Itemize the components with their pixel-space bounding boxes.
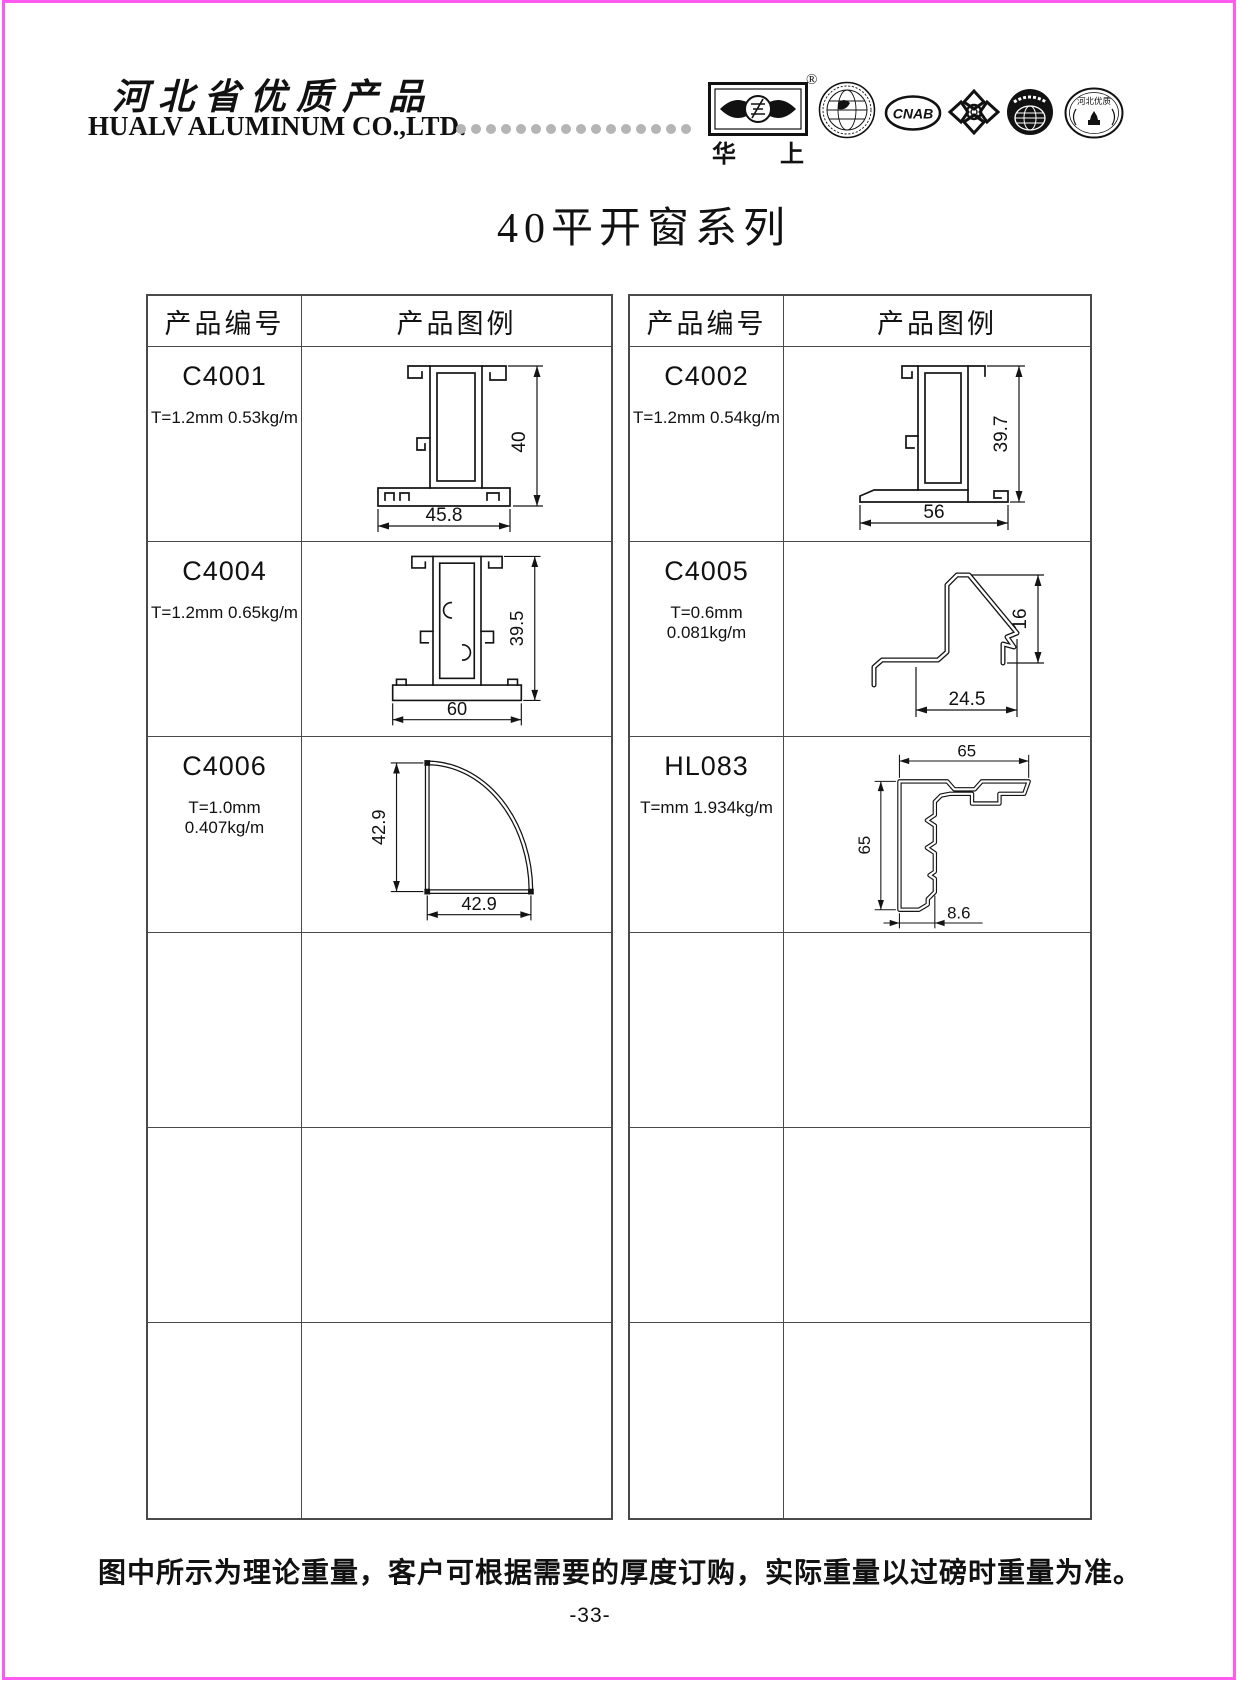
cnab-logo: CNAB [884, 94, 942, 137]
empty-cell [784, 933, 1090, 1128]
profile-drawing-c4004: 39.5 60 [337, 543, 577, 735]
column-header-product-code: 产品编号 [630, 296, 784, 347]
dim-width-label: 42.9 [461, 893, 497, 914]
empty-cell [630, 1323, 784, 1518]
world-map-icon [1006, 88, 1054, 136]
world-map-logo [1006, 88, 1054, 141]
huashang-eye-logo [708, 82, 808, 141]
dim-width-label: 24.5 [949, 689, 986, 710]
empty-cell [148, 1128, 302, 1323]
drawing-cell-c4005: 16 24.5 [784, 542, 1090, 737]
dim-offset-label: 8.6 [947, 904, 970, 923]
product-spec: T=mm 1.934kg/m [630, 798, 783, 818]
empty-cell [148, 933, 302, 1128]
hebei-oval-icon: 河北优质 [1064, 87, 1124, 139]
company-name: HUALV ALUMINUM CO.,LTD. [88, 111, 466, 142]
product-code: C4004 [148, 556, 301, 587]
product-spec: T=1.2mm 0.54kg/m [630, 408, 783, 428]
drawing-cell-c4002: 39.7 56 [784, 347, 1090, 542]
product-cell-c4006: C4006 T=1.0mm 0.407kg/m [148, 737, 302, 932]
product-cell-c4004: C4004 T=1.2mm 0.65kg/m [148, 542, 302, 737]
dim-height-label: 39.7 [991, 416, 1012, 453]
decorative-dots [456, 124, 691, 134]
product-spec: T=1.2mm 0.53kg/m [148, 408, 301, 428]
catalog-page: 河北省优质产品 HUALV ALUMINUM CO.,LTD. ® 华 上 [0, 0, 1240, 1683]
brand-characters: 华 上 [712, 134, 804, 169]
drawing-cell-c4001: 40 45.8 [302, 347, 611, 542]
brand-char-shang: 上 [780, 134, 804, 169]
dim-height-label: 16 [1010, 608, 1031, 629]
empty-cell [148, 1323, 302, 1518]
product-cell-c4005: C4005 T=0.6mm 0.081kg/m [630, 542, 784, 737]
dim-height-label: 39.5 [506, 611, 527, 647]
empty-cell [630, 933, 784, 1128]
product-cell-c4002: C4002 T=1.2mm 0.54kg/m [630, 347, 784, 542]
dim-left-label: 65 [855, 836, 874, 855]
dim-height-label: 40 [509, 432, 530, 453]
quality-knot-logo [948, 89, 1000, 140]
column-header-product-drawing: 产品图例 [784, 296, 1090, 347]
profile-drawing-c4002: 39.7 56 [812, 350, 1062, 538]
profile-drawing-c4006: 42.9 42.9 [337, 738, 577, 930]
empty-cell [630, 1128, 784, 1323]
product-code: C4006 [148, 751, 301, 782]
dim-width-label: 60 [446, 698, 466, 719]
empty-cell [302, 1128, 611, 1323]
huashang-eye-icon [708, 82, 808, 136]
hebei-quality-oval-logo: 河北优质 [1064, 87, 1124, 144]
column-header-product-code: 产品编号 [148, 296, 302, 347]
product-cell-hl083: HL083 T=mm 1.934kg/m [630, 737, 784, 932]
knot-icon [948, 89, 1000, 135]
globe-icon [818, 81, 876, 139]
drawing-cell-c4004: 39.5 60 [302, 542, 611, 737]
page-number: -33- [0, 1604, 1180, 1628]
globe-certification-logo [818, 81, 876, 144]
product-code: C4005 [630, 556, 783, 587]
product-code: C4001 [148, 361, 301, 392]
registered-mark: ® [806, 72, 817, 89]
empty-cell [302, 1323, 611, 1518]
footer-note: 图中所示为理论重量，客户可根据需要的厚度订购，实际重量以过磅时重量为准。 [30, 1551, 1210, 1591]
product-spec: T=0.6mm 0.081kg/m [630, 603, 783, 643]
product-cell-c4001: C4001 T=1.2mm 0.53kg/m [148, 347, 302, 542]
brand-char-hua: 华 [712, 134, 736, 169]
product-table-left: 产品编号 产品图例 C4001 T=1.2mm 0.53kg/m [146, 294, 613, 1520]
profile-drawing-hl083: 65 65 8.6 [818, 737, 1057, 932]
dim-height-label: 42.9 [368, 810, 389, 846]
dim-width-label: 45.8 [425, 505, 462, 526]
drawing-cell-hl083: 65 65 8.6 [784, 737, 1090, 932]
product-code: C4002 [630, 361, 783, 392]
profile-drawing-c4001: 40 45.8 [332, 350, 582, 538]
product-code: HL083 [630, 751, 783, 782]
page-title: 40平开窗系列 [394, 194, 894, 255]
empty-cell [302, 933, 611, 1128]
product-table-right: 产品编号 产品图例 C4002 T=1.2mm 0.54kg/m [628, 294, 1092, 1520]
hebei-oval-text: 河北优质 [1077, 96, 1112, 106]
column-header-product-drawing: 产品图例 [302, 296, 611, 347]
empty-cell [784, 1323, 1090, 1518]
profile-drawing-c4005: 16 24.5 [812, 547, 1062, 732]
dim-top-label: 65 [957, 742, 976, 761]
product-spec: T=1.2mm 0.65kg/m [148, 603, 301, 623]
cnab-text: CNAB [893, 106, 933, 122]
drawing-cell-c4006: 42.9 42.9 [302, 737, 611, 932]
product-spec: T=1.0mm 0.407kg/m [148, 798, 301, 838]
dim-width-label: 56 [923, 502, 944, 523]
empty-cell [784, 1128, 1090, 1323]
cnab-oval-icon: CNAB [884, 94, 942, 132]
